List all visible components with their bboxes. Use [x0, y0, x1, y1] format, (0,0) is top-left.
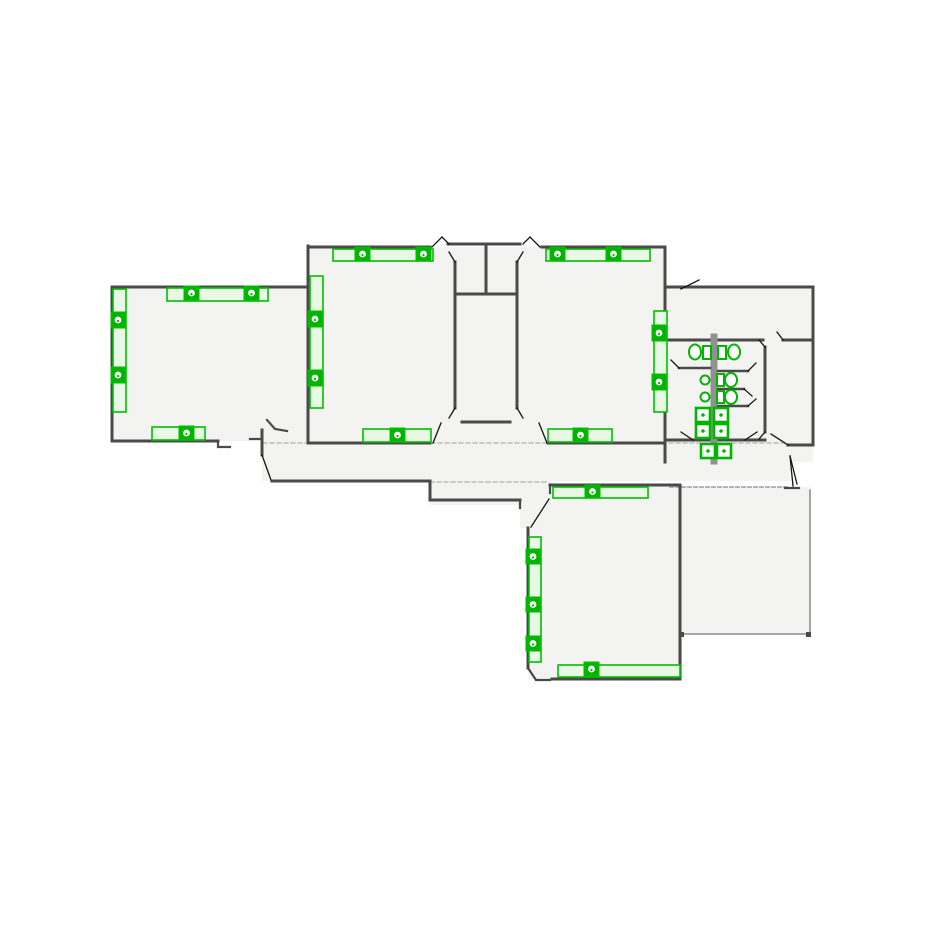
- fixture-strip: [558, 665, 680, 677]
- wall-fitting-icon: [701, 376, 710, 385]
- sink-drain-icon: [722, 449, 726, 453]
- fixture-symbol-dot: [658, 333, 660, 335]
- fixture-symbol-dot: [185, 433, 187, 435]
- door-leaf: [442, 237, 449, 244]
- room-floor: [528, 485, 682, 679]
- fixture-symbol-dot: [190, 293, 192, 295]
- toilet-tank: [718, 346, 726, 359]
- sink-drain-icon: [719, 429, 723, 433]
- door-leaf: [432, 237, 442, 247]
- corner-dot: [679, 632, 684, 637]
- fixture-symbol-dot: [361, 254, 363, 256]
- door-jamb: [218, 441, 230, 447]
- toilet-tank: [703, 346, 711, 359]
- toilet-tank: [717, 374, 724, 386]
- room-floor: [112, 287, 308, 441]
- fixture-symbol-dot: [532, 556, 534, 558]
- fixture-symbol-dot: [422, 254, 424, 256]
- fixture-symbol-dot: [396, 435, 398, 437]
- fixture-symbol-dot: [590, 669, 592, 671]
- fixture-symbol-dot: [532, 643, 534, 645]
- fixture-symbol-dot: [532, 604, 534, 606]
- fixture-symbol-dot: [579, 435, 581, 437]
- toilet-tank: [717, 391, 724, 403]
- floor-plan-canvas: [0, 0, 925, 925]
- toilet-bowl: [689, 345, 701, 360]
- room-floor: [682, 487, 810, 634]
- fixture-symbol-dot: [591, 491, 593, 493]
- fixture-strip: [113, 289, 126, 412]
- fixture-symbol-dot: [314, 319, 316, 321]
- door-leaf: [523, 237, 530, 244]
- fixture-symbol-dot: [250, 293, 252, 295]
- fixture-symbol-dot: [117, 375, 119, 377]
- sink-drain-icon: [701, 429, 705, 433]
- toilet-bowl: [725, 373, 737, 387]
- fixture-symbol-dot: [658, 382, 660, 384]
- fixture-symbol-dot: [314, 378, 316, 380]
- fixture-symbol-dot: [117, 320, 119, 322]
- corner-dot: [806, 632, 811, 637]
- sink-drain-icon: [701, 413, 705, 417]
- sink-drain-icon: [706, 449, 710, 453]
- toilet-bowl: [728, 345, 740, 360]
- door-leaf: [530, 237, 540, 247]
- fixture-symbol-dot: [612, 254, 614, 256]
- wall-fitting-icon: [701, 393, 710, 402]
- toilet-bowl: [725, 390, 737, 404]
- fixture-symbol-dot: [556, 254, 558, 256]
- sink-drain-icon: [719, 413, 723, 417]
- floor-plan: [0, 0, 925, 925]
- fixture-strip: [310, 276, 323, 408]
